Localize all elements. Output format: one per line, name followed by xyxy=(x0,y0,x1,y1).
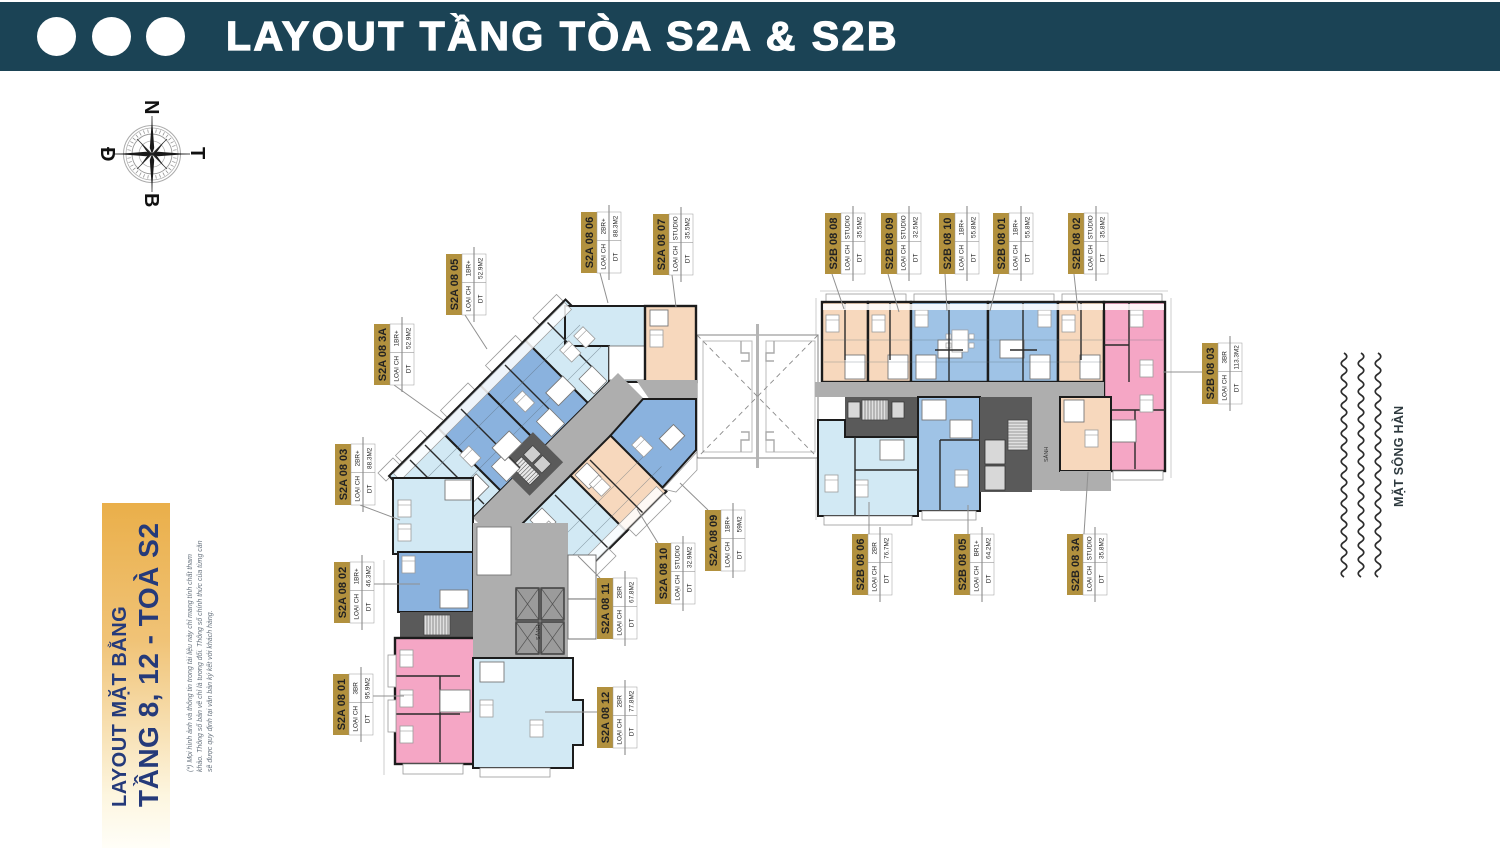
svg-text:DT: DT xyxy=(685,254,692,263)
svg-text:S2A 08 3A: S2A 08 3A xyxy=(377,328,389,381)
svg-text:2BR: 2BR xyxy=(617,586,624,599)
svg-text:S2A 08 02: S2A 08 02 xyxy=(337,567,349,619)
svg-text:LOẠI CH: LOẠI CH xyxy=(974,566,981,592)
svg-text:35.5M2: 35.5M2 xyxy=(685,217,692,239)
svg-text:DT: DT xyxy=(884,574,891,583)
svg-text:52.9M2: 52.9M2 xyxy=(406,327,413,349)
svg-text:DT: DT xyxy=(366,602,373,611)
svg-text:1BR+: 1BR+ xyxy=(466,260,473,276)
svg-text:BR1+: BR1+ xyxy=(974,540,981,556)
svg-text:113.3M2: 113.3M2 xyxy=(1234,345,1241,370)
svg-text:2BR: 2BR xyxy=(872,542,879,555)
svg-text:LOẠI CH: LOẠI CH xyxy=(1222,375,1229,401)
svg-text:S2B 08 02: S2B 08 02 xyxy=(1071,218,1083,270)
svg-text:DT: DT xyxy=(687,583,694,592)
svg-text:88.3M2: 88.3M2 xyxy=(613,215,620,237)
svg-text:LOẠI CH: LOẠI CH xyxy=(394,356,401,382)
svg-text:35.5M2: 35.5M2 xyxy=(857,216,864,238)
svg-text:1BR+: 1BR+ xyxy=(959,219,966,235)
svg-text:2BR+: 2BR+ xyxy=(355,450,362,466)
svg-text:LOẠI CH: LOẠI CH xyxy=(872,566,879,592)
svg-text:STUDIO: STUDIO xyxy=(901,215,908,239)
svg-text:2BR+: 2BR+ xyxy=(601,218,608,234)
svg-text:STUDIO: STUDIO xyxy=(675,545,682,569)
svg-text:DT: DT xyxy=(1100,253,1107,262)
svg-text:1BR+: 1BR+ xyxy=(394,330,401,346)
svg-text:55.8M2: 55.8M2 xyxy=(971,216,978,238)
svg-text:DT: DT xyxy=(857,253,864,262)
svg-text:DT: DT xyxy=(367,484,374,493)
svg-text:95.9M2: 95.9M2 xyxy=(365,677,372,699)
svg-text:DT: DT xyxy=(986,574,993,583)
svg-text:52.9M2: 52.9M2 xyxy=(478,257,485,279)
svg-text:STUDIO: STUDIO xyxy=(673,216,680,240)
svg-text:LOẠI CH: LOẠI CH xyxy=(1088,245,1095,271)
svg-text:LOẠI CH: LOẠI CH xyxy=(354,594,361,620)
svg-text:2BR: 2BR xyxy=(617,695,624,708)
svg-text:DT: DT xyxy=(913,253,920,262)
svg-text:35.8M2: 35.8M2 xyxy=(1100,216,1107,238)
svg-text:STUDIO: STUDIO xyxy=(1088,215,1095,239)
svg-text:STUDIO: STUDIO xyxy=(845,215,852,239)
svg-text:S2A 08 01: S2A 08 01 xyxy=(336,679,348,731)
svg-text:59M2: 59M2 xyxy=(737,516,744,532)
svg-text:S2A 08 11: S2A 08 11 xyxy=(600,583,612,634)
svg-text:DT: DT xyxy=(406,364,413,373)
svg-text:1BR+: 1BR+ xyxy=(725,516,732,532)
svg-text:DT: DT xyxy=(629,618,636,627)
svg-text:55.8M2: 55.8M2 xyxy=(1025,216,1032,238)
svg-text:1BR+: 1BR+ xyxy=(1013,219,1020,235)
svg-text:DT: DT xyxy=(1099,574,1106,583)
svg-text:LOẠI CH: LOẠI CH xyxy=(901,245,908,271)
svg-text:67.8M2: 67.8M2 xyxy=(629,581,636,603)
svg-text:LOẠI CH: LOẠI CH xyxy=(355,476,362,502)
svg-text:LOẠI CH: LOẠI CH xyxy=(617,719,624,745)
svg-text:64.2M2: 64.2M2 xyxy=(986,537,993,559)
svg-text:SẢNH: SẢNH xyxy=(535,625,542,640)
svg-text:DT: DT xyxy=(971,253,978,262)
svg-text:DT: DT xyxy=(478,294,485,303)
svg-text:3BR: 3BR xyxy=(353,682,360,695)
svg-text:S2B 08 10: S2B 08 10 xyxy=(942,218,954,270)
svg-text:S2B 08 06: S2B 08 06 xyxy=(855,539,867,591)
svg-text:LOẠI CH: LOẠI CH xyxy=(353,706,360,732)
svg-text:S2A 08 09: S2A 08 09 xyxy=(708,515,720,567)
svg-text:LOẠI CH: LOẠI CH xyxy=(466,286,473,312)
svg-text:S2A 08 06: S2A 08 06 xyxy=(584,217,596,269)
svg-text:S2B 08 03: S2B 08 03 xyxy=(1205,348,1217,400)
svg-text:3BR: 3BR xyxy=(1222,351,1229,364)
svg-text:DT: DT xyxy=(613,252,620,261)
svg-text:S2B 08 08: S2B 08 08 xyxy=(828,218,840,270)
svg-text:32.5M2: 32.5M2 xyxy=(913,216,920,238)
svg-text:LOẠI CH: LOẠI CH xyxy=(725,542,732,568)
svg-text:LOẠI CH: LOẠI CH xyxy=(673,246,680,272)
svg-text:S2A 08 10: S2A 08 10 xyxy=(658,548,670,600)
svg-text:1BR+: 1BR+ xyxy=(354,568,361,584)
svg-text:LOẠI CH: LOẠI CH xyxy=(601,244,608,270)
svg-text:DT: DT xyxy=(737,550,744,559)
svg-text:SẢNH: SẢNH xyxy=(1043,447,1050,462)
svg-text:S2B 08 3A: S2B 08 3A xyxy=(1070,538,1082,592)
svg-text:32.9M2: 32.9M2 xyxy=(687,546,694,568)
svg-text:88.3M2: 88.3M2 xyxy=(367,447,374,469)
svg-text:LOẠI CH: LOẠI CH xyxy=(617,610,624,636)
svg-text:LOẠI CH: LOẠI CH xyxy=(845,245,852,271)
svg-text:S2B 08 01: S2B 08 01 xyxy=(996,218,1008,270)
svg-text:LOẠI CH: LOẠI CH xyxy=(675,575,682,601)
svg-text:S2A 08 05: S2A 08 05 xyxy=(449,259,461,311)
svg-text:S2A 08 03: S2A 08 03 xyxy=(338,449,350,501)
svg-text:77.8M2: 77.8M2 xyxy=(629,690,636,712)
svg-text:S2A 08 12: S2A 08 12 xyxy=(600,692,612,744)
svg-text:DT: DT xyxy=(1234,383,1241,392)
svg-text:MẶT SÔNG HÀN: MẶT SÔNG HÀN xyxy=(1391,405,1406,507)
svg-text:DT: DT xyxy=(1025,253,1032,262)
svg-text:LOẠI CH: LOẠI CH xyxy=(1087,566,1094,592)
svg-text:46.3M2: 46.3M2 xyxy=(366,565,373,587)
svg-text:35.8M2: 35.8M2 xyxy=(1099,537,1106,559)
svg-text:STUDIO: STUDIO xyxy=(1087,536,1094,560)
svg-text:S2B 08 09: S2B 08 09 xyxy=(884,218,896,270)
svg-text:S2A 08 07: S2A 08 07 xyxy=(656,219,668,271)
svg-text:LOẠI CH: LOẠI CH xyxy=(1013,245,1020,271)
svg-text:76.7M2: 76.7M2 xyxy=(884,537,891,559)
svg-text:S2B 08 05: S2B 08 05 xyxy=(957,539,969,591)
svg-text:LOẠI CH: LOẠI CH xyxy=(959,245,966,271)
svg-text:DT: DT xyxy=(365,714,372,723)
svg-text:DT: DT xyxy=(629,727,636,736)
